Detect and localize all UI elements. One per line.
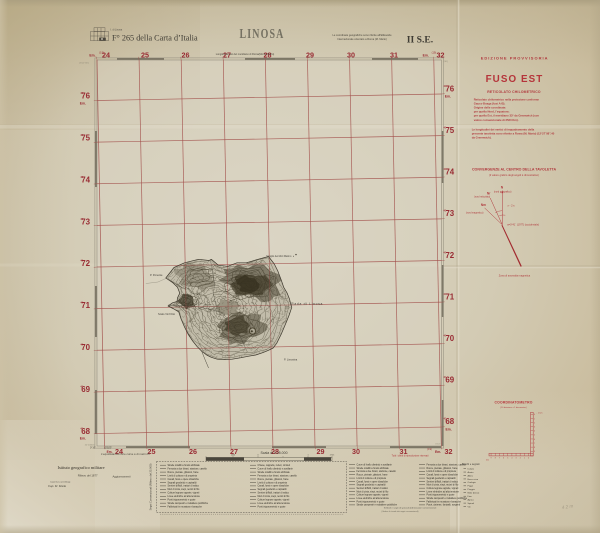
- svg-text:Muri di cinta, siepi, recinti: Muri di cinta, siepi, recinti di filo: [357, 490, 390, 493]
- svg-text:9: 9: [491, 458, 492, 460]
- svg-text:Segnali geodetici e capisaldi: Segnali geodetici e capisaldi: [427, 477, 456, 480]
- svg-text:Le coordinate geografiche sono: Le coordinate geografiche sono riferite …: [332, 33, 392, 37]
- svg-text:7: 7: [534, 443, 535, 445]
- svg-text:F° 265 della Carta d’Italia: F° 265 della Carta d’Italia: [112, 34, 198, 43]
- svg-text:5: 5: [534, 435, 535, 437]
- svg-text:30: 30: [347, 51, 355, 60]
- svg-text:Pozzi, cisterne, fontanili, so: Pozzi, cisterne, fontanili, sorgenti: [427, 504, 461, 507]
- svg-text:(19)20´: (19)20´: [104, 447, 112, 450]
- svg-text:Muri di cinta, siepi, recinti: Muri di cinta, siepi, recinti di filo: [427, 484, 460, 487]
- svg-text:75: 75: [445, 126, 454, 135]
- svg-text:Punti trigonometrici e quote: Punti trigonometrici e quote: [427, 494, 456, 497]
- svg-text:1: 1: [307, 455, 308, 457]
- svg-text:31: 31: [390, 51, 398, 60]
- svg-text:Fabbricati in muratura e barac: Fabbricati in muratura e baracche: [168, 505, 203, 508]
- svg-text:Rocce, pietraie, ghiaioni, fra: Rocce, pietraie, ghiaioni, frane: [427, 467, 459, 470]
- svg-text:Limiti di coltura e di proprie: Limiti di coltura e di proprieta: [427, 470, 457, 473]
- svg-text:Em.: Em.: [80, 437, 86, 441]
- svg-text:Canali, fossi e opere idraulic: Canali, fossi e opere idrauliche: [357, 480, 389, 483]
- svg-text:0: 0: [528, 458, 529, 460]
- svg-text:Colture legnose agrarie, vigne: Colture legnose agrarie, vigneti: [168, 492, 200, 495]
- svg-text:Reticolato chilometrico nella: Reticolato chilometrico nella proiezione…: [474, 97, 540, 101]
- svg-text:Em.: Em.: [445, 95, 451, 99]
- svg-text:Rocce, pietraie, ghiaioni, fra: Rocce, pietraie, ghiaioni, frane: [168, 471, 200, 474]
- svg-text:(19): (19): [99, 50, 104, 54]
- svg-text:Abies: Abies: [468, 474, 474, 477]
- svg-text:Strade campestri e mulattiere: Strade campestri e mulattiere pubbliche: [168, 502, 209, 505]
- svg-text:32: 32: [445, 447, 453, 456]
- svg-text:2: 2: [534, 422, 535, 424]
- svg-text:Em.: Em.: [435, 450, 441, 454]
- svg-text:Scala di 1:25.000: Scala di 1:25.000: [260, 451, 287, 455]
- svg-text:Canali, fossi e opere idraulic: Canali, fossi e opere idrauliche: [427, 474, 459, 477]
- svg-text:Sentieri difficili, tratturi d: Sentieri difficili, tratturi di valico: [357, 487, 389, 490]
- svg-text:Bosco vivo: Bosco vivo: [468, 479, 479, 481]
- svg-text:Pioggia: Pioggia: [468, 489, 476, 491]
- svg-text:Ferrovia a due binari, stazion: Ferrovia a due binari, stazione, casello: [168, 467, 208, 470]
- svg-text:Limiti di coltura e di proprie: Limiti di coltura e di proprieta: [357, 477, 387, 480]
- svg-text:Simboli e segni di speciali ab: Simboli e segni di speciali abbreviazion…: [384, 506, 437, 509]
- svg-text:Linee elettriche ad alta tensi: Linee elettriche ad alta tensione: [427, 490, 460, 493]
- svg-text:0: 0: [534, 414, 535, 416]
- svg-text:I. di Linosa: I. di Linosa: [111, 28, 123, 31]
- svg-text:km: km: [486, 459, 489, 461]
- svg-text:Strade rotabili a fondo artifi: Strade rotabili a fondo artificiale: [357, 467, 390, 470]
- svg-text:29: 29: [306, 51, 314, 60]
- svg-text:1000: 1000: [231, 455, 235, 457]
- svg-text:Aggiornamenti: Aggiornamenti: [113, 475, 131, 479]
- svg-text:Rocce, pietraie, ghiaioni, fra: Rocce, pietraie, ghiaioni, frane: [357, 474, 389, 477]
- svg-text:Canali, fossi e opere idraulic: Canali, fossi e opere idrauliche: [168, 478, 200, 481]
- svg-text:Isolato: Isolato: [468, 467, 475, 470]
- svg-text:Linee elettriche ad alta tensi: Linee elettriche ad alta tensione: [258, 502, 291, 505]
- svg-text:Segni Convenzionali (Rilievo d: Segni Convenzionali (Rilievo del 25.000): [149, 464, 153, 511]
- svg-text:presente tavoletta sono riferi: presente tavoletta sono riferite a Roma …: [472, 131, 555, 135]
- svg-text:Canali, fossi e opere idraulic: Canali, fossi e opere idrauliche: [258, 485, 290, 488]
- svg-text:8: 8: [534, 447, 535, 449]
- svg-text:29: 29: [317, 447, 325, 456]
- svg-text:Ferrovia a due binari, stazion: Ferrovia a due binari, stazione, casello: [258, 474, 298, 477]
- svg-text:EDIZIONE PROVVISORIA: EDIZIONE PROVVISORIA: [481, 55, 549, 60]
- svg-text:RETICOLATO CHILOMETRICO: RETICOLATO CHILOMETRICO: [487, 90, 541, 94]
- svg-text:CONVERGENZE AL CENTRO DELLA TA: CONVERGENZE AL CENTRO DELLA TAVOLETTA: [472, 168, 557, 172]
- svg-text:Curve di livello direttrici e: Curve di livello direttrici e ausiliarie: [357, 464, 393, 467]
- svg-text:FUSO EST: FUSO EST: [486, 74, 544, 85]
- svg-text:COORDINATOMETRO: COORDINATOMETRO: [495, 401, 533, 405]
- svg-text:Colture legnose agrarie, vigne: Colture legnose agrarie, vigneti: [258, 499, 290, 502]
- svg-text:Zona di anomalia magnetica: Zona di anomalia magnetica: [499, 275, 531, 278]
- svg-text:26: 26: [182, 51, 190, 60]
- svg-text:74: 74: [445, 168, 454, 177]
- svg-text:Colture legnose agrarie, vigne: Colture legnose agrarie, vigneti: [357, 494, 389, 497]
- svg-text:7: 7: [499, 458, 500, 460]
- svg-text:6: 6: [503, 458, 504, 460]
- svg-text:Muri di cinta, siepi, recinti: Muri di cinta, siepi, recinti di filo: [258, 495, 291, 498]
- svg-text:←1 km: ←1 km: [536, 412, 543, 414]
- svg-text:76: 76: [445, 84, 454, 93]
- svg-text:Chiese, cappelle, ruderi, cimi: Chiese, cappelle, ruderi, cimiteri: [258, 464, 291, 467]
- svg-text:Spinali: Spinali: [468, 503, 475, 505]
- svg-text:Aratro: Aratro: [468, 471, 475, 474]
- svg-text:Sentieri difficili, tratturi d: Sentieri difficili, tratturi di valico: [168, 485, 200, 488]
- svg-text:70: 70: [445, 334, 454, 343]
- svg-text:Strade campestri e mulattiere: Strade campestri e mulattiere pubbliche: [357, 504, 398, 507]
- svg-text:P. Limosina: P. Limosina: [284, 358, 298, 362]
- svg-text:(nord magnetico): (nord magnetico): [466, 211, 484, 214]
- svg-text:II S.E.: II S.E.: [407, 35, 433, 46]
- svg-text:3: 3: [534, 426, 535, 428]
- svg-text:Segnali geodetici e capisaldi: Segnali geodetici e capisaldi: [357, 484, 386, 487]
- svg-text:Muri di cinta, siepi, recinti: Muri di cinta, siepi, recinti di filo: [168, 488, 201, 491]
- svg-text:Le longitudini dei vertici: Le longitudini dei vertici di inquadrame…: [472, 127, 535, 131]
- svg-text:Em.: Em.: [423, 53, 429, 57]
- svg-text:Istituto geografico militare: Istituto geografico militare: [58, 465, 105, 470]
- svg-text:Scalo Vint’Otto: Scalo Vint’Otto: [158, 312, 176, 316]
- svg-text:Scoglio dei Mori Marino: Scoglio dei Mori Marino: [266, 255, 292, 258]
- svg-text:Mole (forse): Mole (forse): [468, 492, 480, 495]
- svg-text:Linee elettriche ad alta tensi: Linee elettriche ad alta tensione: [357, 497, 390, 500]
- svg-text:Rocce, pietraie, ghiaioni, fra: Rocce, pietraie, ghiaioni, frane: [258, 478, 290, 481]
- svg-text:0°10´: 0°10´: [90, 447, 96, 450]
- svg-text:8: 8: [495, 458, 496, 460]
- svg-text:Limiti di coltura e di proprie: Limiti di coltura e di proprieta: [168, 474, 198, 477]
- svg-text:Pigge: Pigge: [468, 486, 474, 488]
- svg-text:Segnali geodetici e capisaldi: Segnali geodetici e capisaldi: [168, 481, 197, 484]
- svg-text:Gauss-Boaga (fusi A-B).: Gauss-Boaga (fusi A-B).: [474, 101, 506, 105]
- svg-text:5: 5: [507, 458, 508, 460]
- svg-text:Viti: Viti: [468, 505, 472, 508]
- svg-text:Nm: Nm: [481, 203, 486, 207]
- svg-text:32: 32: [437, 51, 445, 60]
- svg-text:a=0°41´ (1977) (occidentale): a=0°41´ (1977) (occidentale): [507, 223, 539, 226]
- svg-text:(nord reticolato): (nord reticolato): [474, 196, 490, 199]
- svg-text:L’equidistanza fra le curve è: L’equidistanza fra le curve è di metri 2…: [101, 452, 150, 456]
- svg-text:68: 68: [445, 417, 454, 426]
- svg-text:Em.: Em.: [80, 101, 86, 105]
- svg-text:Punti trigonometrici e quote: Punti trigonometrici e quote: [168, 499, 197, 502]
- svg-text:2: 2: [520, 458, 521, 460]
- svg-text:(19): (19): [427, 447, 432, 451]
- svg-text:(10 divisione = 1 decametro): (10 divisione = 1 decametro): [500, 406, 527, 409]
- svg-text:Em.: Em.: [446, 428, 452, 432]
- svg-text:(Vedere le tavole dei segni co: (Vedere le tavole dei segni convenzional…: [382, 510, 419, 513]
- svg-text:Strade rotabili a fondo artifi: Strade rotabili a fondo artificiale: [168, 464, 201, 467]
- svg-text:1: 1: [534, 418, 535, 420]
- svg-text:4: 4: [534, 431, 535, 433]
- svg-text:Limiti di coltura e di proprie: Limiti di coltura e di proprieta: [258, 481, 288, 484]
- svg-text:(nord geografico): (nord geografico): [494, 191, 512, 194]
- svg-text:Colture legnose agrarie, vigne: Colture legnose agrarie, vigneti: [427, 487, 459, 490]
- svg-text:Copertura aerofotogr.: Copertura aerofotogr.: [50, 480, 71, 483]
- svg-text:x - 2 s: x - 2 s: [508, 203, 516, 207]
- svg-text:Fabbricati in muratura e barac: Fabbricati in muratura e baracche: [427, 500, 462, 503]
- svg-text:Origine delle coordinate:: Origine delle coordinate:: [474, 106, 506, 110]
- svg-text:6: 6: [534, 439, 535, 441]
- svg-text:30: 30: [352, 447, 360, 456]
- svg-text:0´10″: 0´10″: [435, 443, 440, 446]
- svg-text:Boschi e segnali: Boschi e segnali: [462, 463, 480, 466]
- svg-text:20´(1°30´): 20´(1°30´): [79, 61, 89, 64]
- svg-text:69: 69: [445, 376, 454, 385]
- svg-text:Ferrovia a due binari, stazion: Ferrovia a due binari, stazione, casello: [357, 470, 397, 473]
- svg-text:Strade rotabili a fondo artifi: Strade rotabili a fondo artificiale: [258, 471, 291, 474]
- svg-text:Curve di livello direttrici e: Curve di livello direttrici e ausiliarie: [258, 467, 294, 470]
- svg-text:Punti trigonometrici e quote: Punti trigonometrici e quote: [258, 505, 287, 508]
- svg-text:Punti trigonometrici e quote: Punti trigonometrici e quote: [357, 500, 386, 503]
- svg-text:Sentieri difficili, tratturi d: Sentieri difficili, tratturi di valico: [258, 492, 290, 495]
- svg-text:Rilievo del 1877: Rilievo del 1877: [78, 473, 98, 477]
- svg-text:Em.: Em.: [89, 53, 95, 57]
- svg-text:valore convenzionale di 2520 K: valore convenzionale di 2520 Km).: [474, 118, 519, 122]
- svg-text:(il valore grafico degli angol: (il valore grafico degli angoli è dimost…: [489, 173, 539, 177]
- svg-text:3: 3: [516, 458, 517, 460]
- svg-text:P. Ponente: P. Ponente: [150, 273, 163, 277]
- svg-text:Orologio: Orologio: [468, 481, 477, 484]
- svg-text:2 Km: 2 Km: [330, 455, 335, 457]
- svg-text:Internazionale orientato a Rom: Internazionale orientato a Roma (M. Mari…: [337, 37, 387, 41]
- svg-text:(30´): (30´): [444, 60, 449, 63]
- svg-text:da Greenwich).: da Greenwich).: [472, 135, 492, 139]
- svg-text:Strade campestri e mulattiere: Strade campestri e mulattiere pubbliche: [427, 497, 468, 500]
- svg-text:4: 4: [511, 458, 512, 460]
- svg-text:26: 26: [189, 447, 197, 456]
- svg-text:73: 73: [445, 209, 454, 218]
- svg-text:(19): (19): [432, 50, 437, 54]
- svg-text:Segnali geodetici e capisaldi: Segnali geodetici e capisaldi: [258, 488, 287, 491]
- svg-text:72: 72: [445, 251, 454, 260]
- svg-text:Ferrovia a due binari, stazion: Ferrovia a due binari, stazione, casello: [427, 464, 467, 467]
- svg-text:25: 25: [141, 51, 149, 60]
- svg-text:Aprico: Aprico: [468, 498, 475, 501]
- svg-text:Tutti i diritti di riproduzion: Tutti i diritti di riproduzione riservat…: [392, 454, 429, 457]
- svg-text:9: 9: [534, 451, 535, 453]
- svg-text:71: 71: [445, 292, 454, 301]
- svg-text:1: 1: [524, 458, 525, 460]
- svg-text:per quella Est, il meridiano 3: per quella Est, il meridiano 33° da Gree…: [474, 114, 540, 118]
- svg-text:Longitudine Est del meridiano: Longitudine Est del meridiano di Roma(Mo…: [216, 53, 275, 56]
- svg-text:per quella Nord, l’equatore;: per quella Nord, l’equatore;: [474, 110, 510, 114]
- svg-text:Rada di Linosa: Rada di Linosa: [291, 302, 323, 306]
- svg-text:LINOSA: LINOSA: [240, 25, 285, 41]
- svg-text:Sentieri difficili, tratturi d: Sentieri difficili, tratturi di valico: [427, 480, 459, 483]
- svg-text:Cap. M. Marle: Cap. M. Marle: [48, 484, 67, 488]
- svg-text:Linee elettriche ad alta tensi: Linee elettriche ad alta tensione: [168, 495, 201, 498]
- svg-text:0: 0: [257, 455, 258, 457]
